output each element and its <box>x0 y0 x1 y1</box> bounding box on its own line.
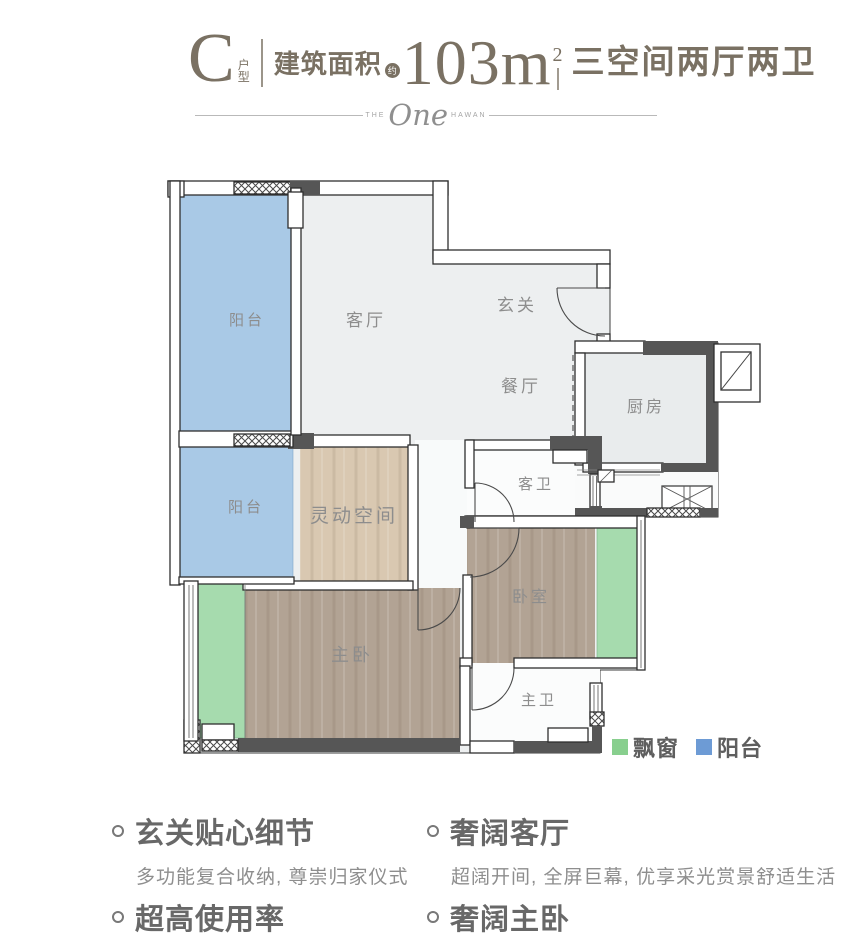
label-guest-bath: 客卫 <box>518 476 554 493</box>
feature-master-bedroom: 奢阔主卧 <box>427 896 570 935</box>
bay-window-right <box>597 526 637 666</box>
label-living: 客厅 <box>346 311 386 330</box>
feature-title: 超高使用率 <box>135 896 285 935</box>
feature-title-row: 奢阔客厅 <box>427 810 836 852</box>
feature-foyer-details: 玄关贴心细节 多功能复合收纳, 尊崇归家仪式 <box>112 810 409 889</box>
balcony-area <box>180 190 293 580</box>
legend-item-balcony: 阳台 <box>696 731 763 763</box>
feature-desc: 超阔开间, 全屏巨幕, 优享采光赏景舒适生活 <box>451 862 836 889</box>
feature-title: 奢阔主卧 <box>450 896 570 935</box>
hallway-area <box>415 440 467 588</box>
feature-title-row: 超高使用率 <box>112 896 285 935</box>
legend-label-bay-window: 飘窗 <box>633 731 679 763</box>
label-bedroom: 卧室 <box>512 588 550 606</box>
legend-label-balcony: 阳台 <box>717 731 763 763</box>
feature-title-row: 玄关贴心细节 <box>112 810 409 852</box>
feature-living-room: 奢阔客厅 超阔开间, 全屏巨幕, 优享采光赏景舒适生活 <box>427 810 836 889</box>
label-flex-space: 灵动空间 <box>310 505 398 527</box>
legend-item-bay-window: 飘窗 <box>612 731 679 763</box>
label-dining: 餐厅 <box>501 377 541 396</box>
label-balcony-bottom: 阳台 <box>228 499 264 516</box>
bay-window-swatch-icon <box>612 739 628 755</box>
label-master-bath: 主卫 <box>521 692 557 709</box>
bullet-icon <box>427 911 439 923</box>
label-master-bed: 主卧 <box>331 645 373 665</box>
floorplan-page: C 户 型 建筑面积 约 103m 2 三空间两厅两卫 THE One HAWA… <box>0 0 865 935</box>
feature-desc: 多功能复合收纳, 尊崇归家仪式 <box>136 862 409 889</box>
bay-window-left <box>198 583 245 738</box>
label-balcony-top: 阳台 <box>229 312 265 329</box>
balcony-swatch-icon <box>696 739 712 755</box>
floor-plan-svg: 阳台 客厅 玄关 餐厅 厨房 客卫 阳台 灵动空间 主卧 卧室 主卫 <box>0 0 865 935</box>
bullet-icon <box>112 911 124 923</box>
plan-legend: 飘窗 阳台 <box>612 731 763 763</box>
label-foyer: 玄关 <box>497 296 537 315</box>
feature-title: 奢阔客厅 <box>450 810 570 852</box>
bullet-icon <box>112 825 124 837</box>
bullet-icon <box>427 825 439 837</box>
feature-title-row: 奢阔主卧 <box>427 896 570 935</box>
feature-title: 玄关贴心细节 <box>135 810 315 852</box>
feature-utilization: 超高使用率 <box>112 896 285 935</box>
label-kitchen: 厨房 <box>627 398 665 416</box>
